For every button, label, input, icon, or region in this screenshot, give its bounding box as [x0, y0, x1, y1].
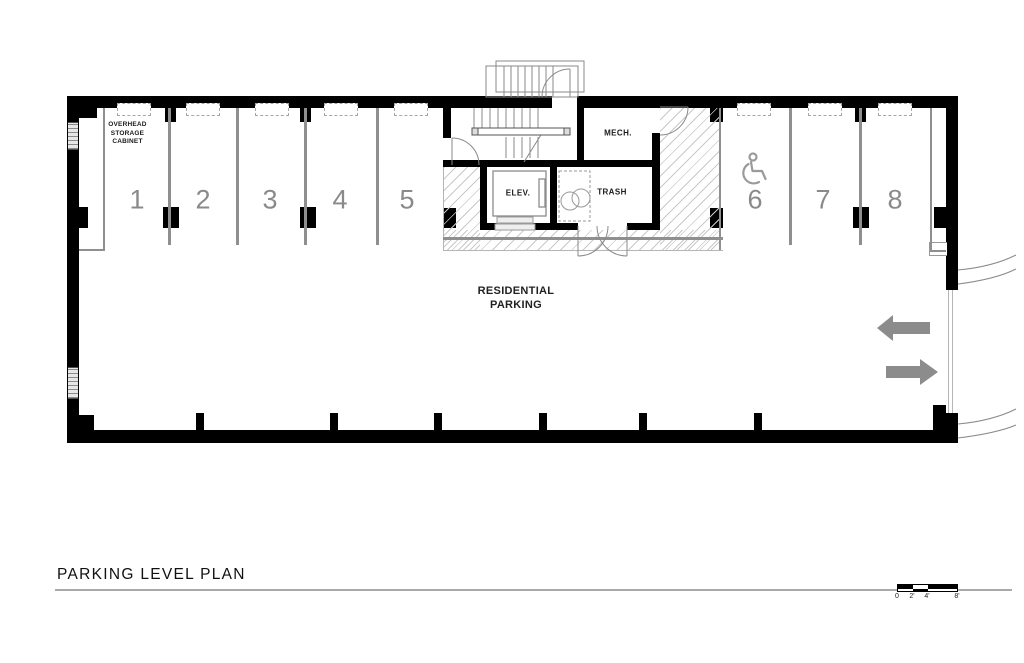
stall-number-7: 7	[815, 185, 830, 216]
scale-label-0: 0	[895, 593, 899, 600]
scale-segment	[898, 585, 913, 589]
storage-note-line3: CABINET	[100, 138, 155, 147]
wheelchair-icon	[743, 154, 765, 184]
scale-label-4: 4'	[924, 593, 929, 600]
area-label: RESIDENTIAL PARKING	[478, 285, 555, 312]
page-title: PARKING LEVEL PLAN	[57, 566, 246, 584]
scale-bar	[897, 584, 958, 592]
stall-number-8: 8	[887, 185, 902, 216]
mech-door	[660, 107, 688, 135]
stair-side-door	[452, 138, 479, 165]
stall-number-3: 3	[262, 185, 277, 216]
elevator-cab	[493, 171, 546, 230]
stall-number-5: 5	[399, 185, 414, 216]
scale-segment	[913, 589, 928, 593]
storage-note: OVERHEAD STORAGE CABINET	[100, 121, 155, 147]
exit-arrow-icon	[886, 359, 938, 385]
floor-plan-sheet: OVERHEAD STORAGE CABINET MECH. ELEV. TRA…	[0, 0, 1024, 663]
stair-enclosure	[486, 61, 584, 97]
entry-arrow-icon	[877, 315, 930, 341]
trash-double-door	[578, 226, 627, 256]
storage-note-line1: OVERHEAD	[100, 121, 155, 130]
stall-number-2: 2	[195, 185, 210, 216]
scale-label-2: 2'	[909, 593, 914, 600]
room-label-mech: MECH.	[604, 129, 632, 138]
storage-note-line2: STORAGE	[100, 130, 155, 139]
area-label-line1: RESIDENTIAL	[478, 285, 555, 299]
title-rule	[55, 589, 1012, 591]
trash-bins	[559, 171, 590, 221]
driveway-curves	[958, 255, 1016, 438]
room-label-elev: ELEV.	[506, 189, 530, 198]
room-label-trash: TRASH	[597, 188, 627, 197]
area-label-line2: PARKING	[478, 299, 555, 313]
stall-number-1: 1	[129, 185, 144, 216]
scale-segment	[928, 585, 957, 589]
stall-number-4: 4	[332, 185, 347, 216]
scale-label-8: 8'	[954, 593, 959, 600]
stair-handrail	[472, 128, 570, 135]
plan-linework	[0, 0, 1024, 663]
stall-number-6: 6	[747, 185, 762, 216]
